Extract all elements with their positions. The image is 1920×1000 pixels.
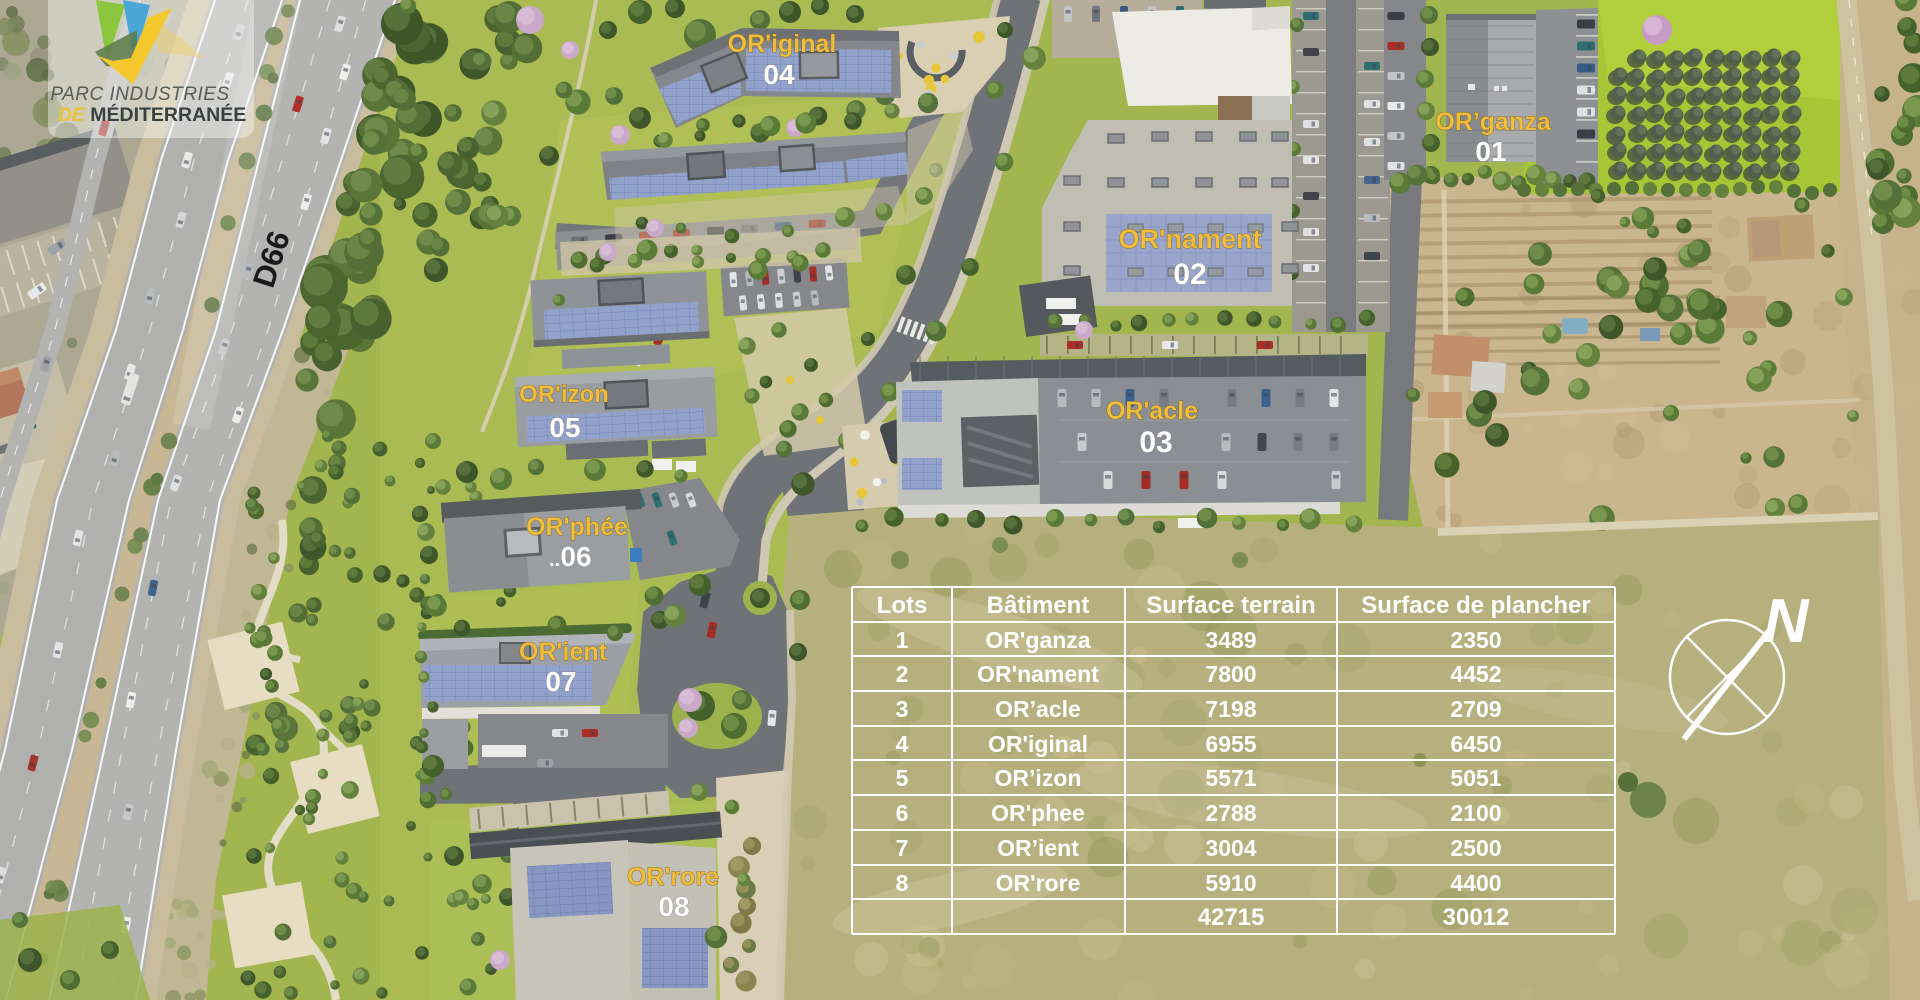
svg-text:2709: 2709 bbox=[1450, 696, 1501, 722]
svg-text:6955: 6955 bbox=[1205, 731, 1256, 757]
svg-text:5571: 5571 bbox=[1205, 765, 1256, 791]
svg-text:OR’izon: OR’izon bbox=[995, 765, 1082, 791]
svg-text:..: .. bbox=[549, 549, 560, 571]
svg-text:3489: 3489 bbox=[1205, 627, 1256, 653]
svg-text:Surface de plancher: Surface de plancher bbox=[1361, 592, 1590, 619]
svg-text:DE MÉDITERRANÉE: DE MÉDITERRANÉE bbox=[58, 103, 247, 126]
svg-text:2100: 2100 bbox=[1450, 800, 1501, 826]
svg-text:OR'iginal: OR'iginal bbox=[728, 30, 837, 58]
svg-text:Lots: Lots bbox=[877, 592, 928, 619]
svg-text:04: 04 bbox=[763, 59, 795, 90]
svg-text:OR'ganza: OR'ganza bbox=[985, 627, 1090, 653]
svg-text:42715: 42715 bbox=[1198, 904, 1265, 931]
svg-text:OR'iginal: OR'iginal bbox=[988, 731, 1088, 757]
svg-text:OR'acle: OR'acle bbox=[1106, 397, 1198, 425]
svg-text:7: 7 bbox=[896, 835, 909, 861]
svg-text:01: 01 bbox=[1475, 136, 1506, 167]
svg-text:OR’ient: OR’ient bbox=[997, 835, 1079, 861]
svg-text:OR’ganza: OR’ganza bbox=[1435, 108, 1551, 136]
svg-text:07: 07 bbox=[545, 666, 576, 697]
svg-text:PARC INDUSTRIES: PARC INDUSTRIES bbox=[50, 84, 229, 105]
svg-text:N: N bbox=[1764, 587, 1810, 656]
svg-text:06: 06 bbox=[560, 541, 591, 572]
svg-text:4400: 4400 bbox=[1450, 870, 1501, 896]
svg-text:OR’acle: OR’acle bbox=[995, 696, 1081, 722]
svg-text:7800: 7800 bbox=[1205, 661, 1256, 687]
svg-text:OR'rore: OR'rore bbox=[627, 863, 719, 891]
svg-text:2500: 2500 bbox=[1450, 835, 1501, 861]
svg-text:OR'rore: OR'rore bbox=[996, 870, 1081, 896]
svg-text:5051: 5051 bbox=[1450, 765, 1501, 791]
svg-text:4: 4 bbox=[896, 731, 909, 757]
svg-text:2788: 2788 bbox=[1205, 800, 1256, 826]
svg-text:5910: 5910 bbox=[1205, 870, 1256, 896]
svg-text:OR'nament: OR'nament bbox=[1119, 224, 1262, 254]
svg-text:7198: 7198 bbox=[1205, 696, 1256, 722]
svg-text:1: 1 bbox=[896, 627, 909, 653]
svg-text:02: 02 bbox=[1173, 258, 1206, 291]
svg-text:6450: 6450 bbox=[1450, 731, 1501, 757]
svg-text:OR'ient: OR'ient bbox=[519, 638, 608, 666]
svg-text:3004: 3004 bbox=[1205, 835, 1256, 861]
svg-text:03: 03 bbox=[1139, 426, 1172, 459]
svg-text:3: 3 bbox=[896, 696, 909, 722]
svg-text:30012: 30012 bbox=[1443, 904, 1510, 931]
svg-text:OR'nament: OR'nament bbox=[977, 661, 1099, 687]
svg-text:8: 8 bbox=[896, 870, 909, 896]
svg-text:Surface terrain: Surface terrain bbox=[1146, 592, 1315, 619]
svg-text:2: 2 bbox=[896, 661, 909, 687]
svg-text:08: 08 bbox=[658, 891, 689, 922]
svg-text:OR'phee: OR'phee bbox=[991, 800, 1085, 826]
svg-text:OR'izon: OR'izon bbox=[519, 381, 609, 408]
svg-text:6: 6 bbox=[896, 800, 909, 826]
svg-text:05: 05 bbox=[549, 412, 580, 443]
svg-text:OR'phée: OR'phée bbox=[526, 513, 628, 541]
svg-text:5: 5 bbox=[896, 765, 909, 791]
svg-text:2350: 2350 bbox=[1450, 627, 1501, 653]
svg-text:4452: 4452 bbox=[1450, 661, 1501, 687]
svg-text:Bâtiment: Bâtiment bbox=[987, 592, 1090, 619]
